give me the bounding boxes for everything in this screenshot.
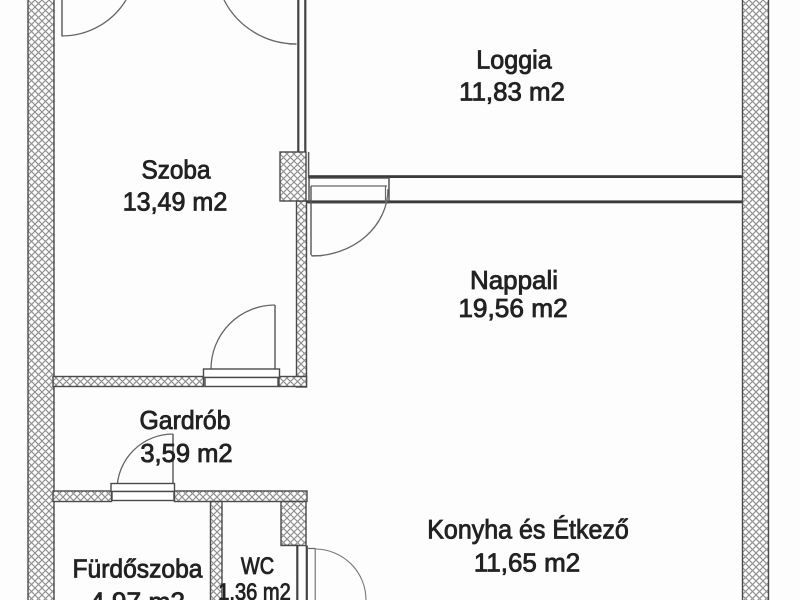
svg-text:Szoba: Szoba	[142, 155, 211, 185]
svg-text:WC: WC	[241, 553, 274, 580]
svg-text:Konyha és Étkező: Konyha és Étkező	[427, 515, 629, 545]
svg-text:11,65 m2: 11,65 m2	[474, 548, 580, 578]
svg-text:19,56 m2: 19,56 m2	[458, 293, 567, 323]
svg-text:Loggia: Loggia	[476, 45, 552, 75]
svg-text:3,59 m2: 3,59 m2	[140, 438, 232, 468]
svg-text:Gardrób: Gardrób	[140, 405, 231, 435]
svg-text:1,36 m2: 1,36 m2	[218, 579, 291, 600]
svg-text:13,49 m2: 13,49 m2	[123, 187, 228, 217]
svg-text:Fürdőszoba: Fürdőszoba	[73, 554, 203, 584]
svg-text:11,83 m2: 11,83 m2	[459, 77, 565, 107]
svg-text:Nappali: Nappali	[470, 265, 558, 295]
svg-text:4,97 m2: 4,97 m2	[90, 587, 185, 600]
